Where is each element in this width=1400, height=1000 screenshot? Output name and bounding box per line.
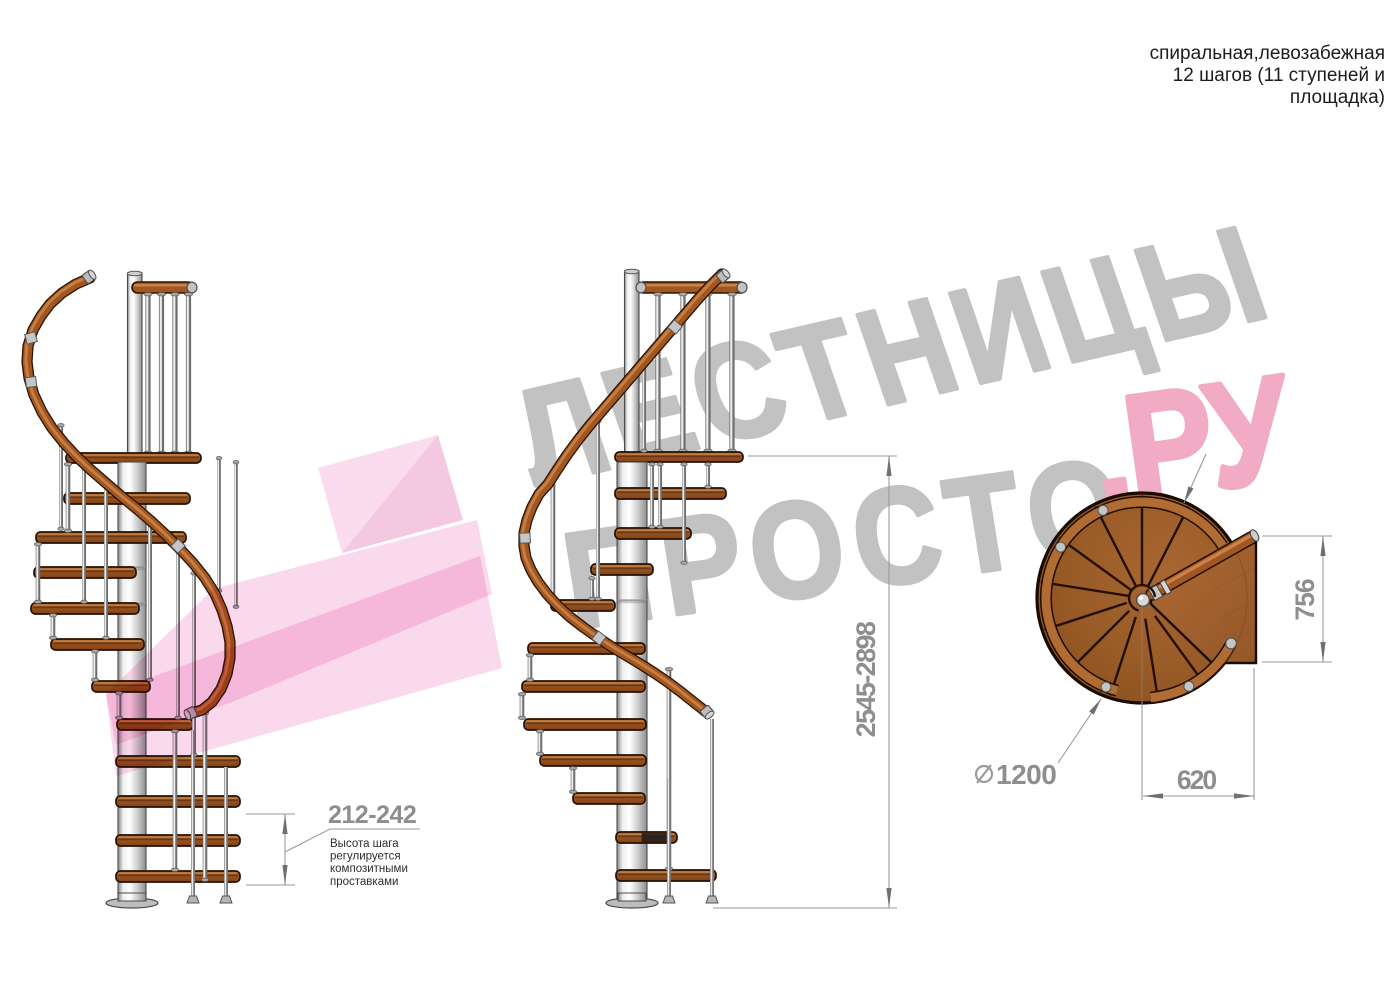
svg-text:1200: 1200 [996, 759, 1056, 790]
svg-text:12 шагов (11 ступеней и: 12 шагов (11 ступеней и [1173, 65, 1385, 86]
svg-text:756: 756 [1290, 579, 1320, 620]
svg-text:спиральная,левозабежная: спиральная,левозабежная [1150, 43, 1385, 64]
svg-text:Высота шага: Высота шага [330, 838, 399, 850]
svg-text:площадка): площадка) [1290, 87, 1385, 108]
svg-text:2545-2898: 2545-2898 [851, 621, 881, 737]
svg-text:212-242: 212-242 [328, 801, 416, 829]
svg-text:композитными: композитными [330, 863, 408, 875]
svg-text:регулируется: регулируется [330, 851, 401, 863]
svg-text:проставками: проставками [330, 876, 398, 888]
svg-text:620: 620 [1177, 765, 1216, 795]
